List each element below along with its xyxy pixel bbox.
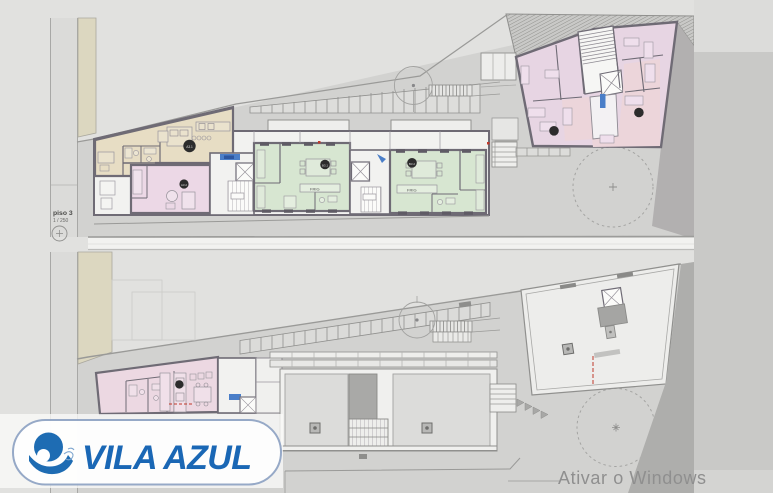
svg-text:A3.2: A3.2 [181,183,188,187]
svg-text:FRIG: FRIG [407,188,417,193]
svg-text:VILA AZUL: VILA AZUL [82,439,252,477]
svg-text:FRIG: FRIG [310,187,320,192]
svg-text:A3.1: A3.1 [186,145,193,149]
svg-text:piso 3: piso 3 [53,210,73,217]
svg-text:B3.1: B3.1 [322,164,329,168]
svg-text:B3.2: B3.2 [409,162,416,166]
svg-text:1 / 250: 1 / 250 [53,218,69,224]
svg-text:Ativar o Windows: Ativar o Windows [558,468,707,488]
